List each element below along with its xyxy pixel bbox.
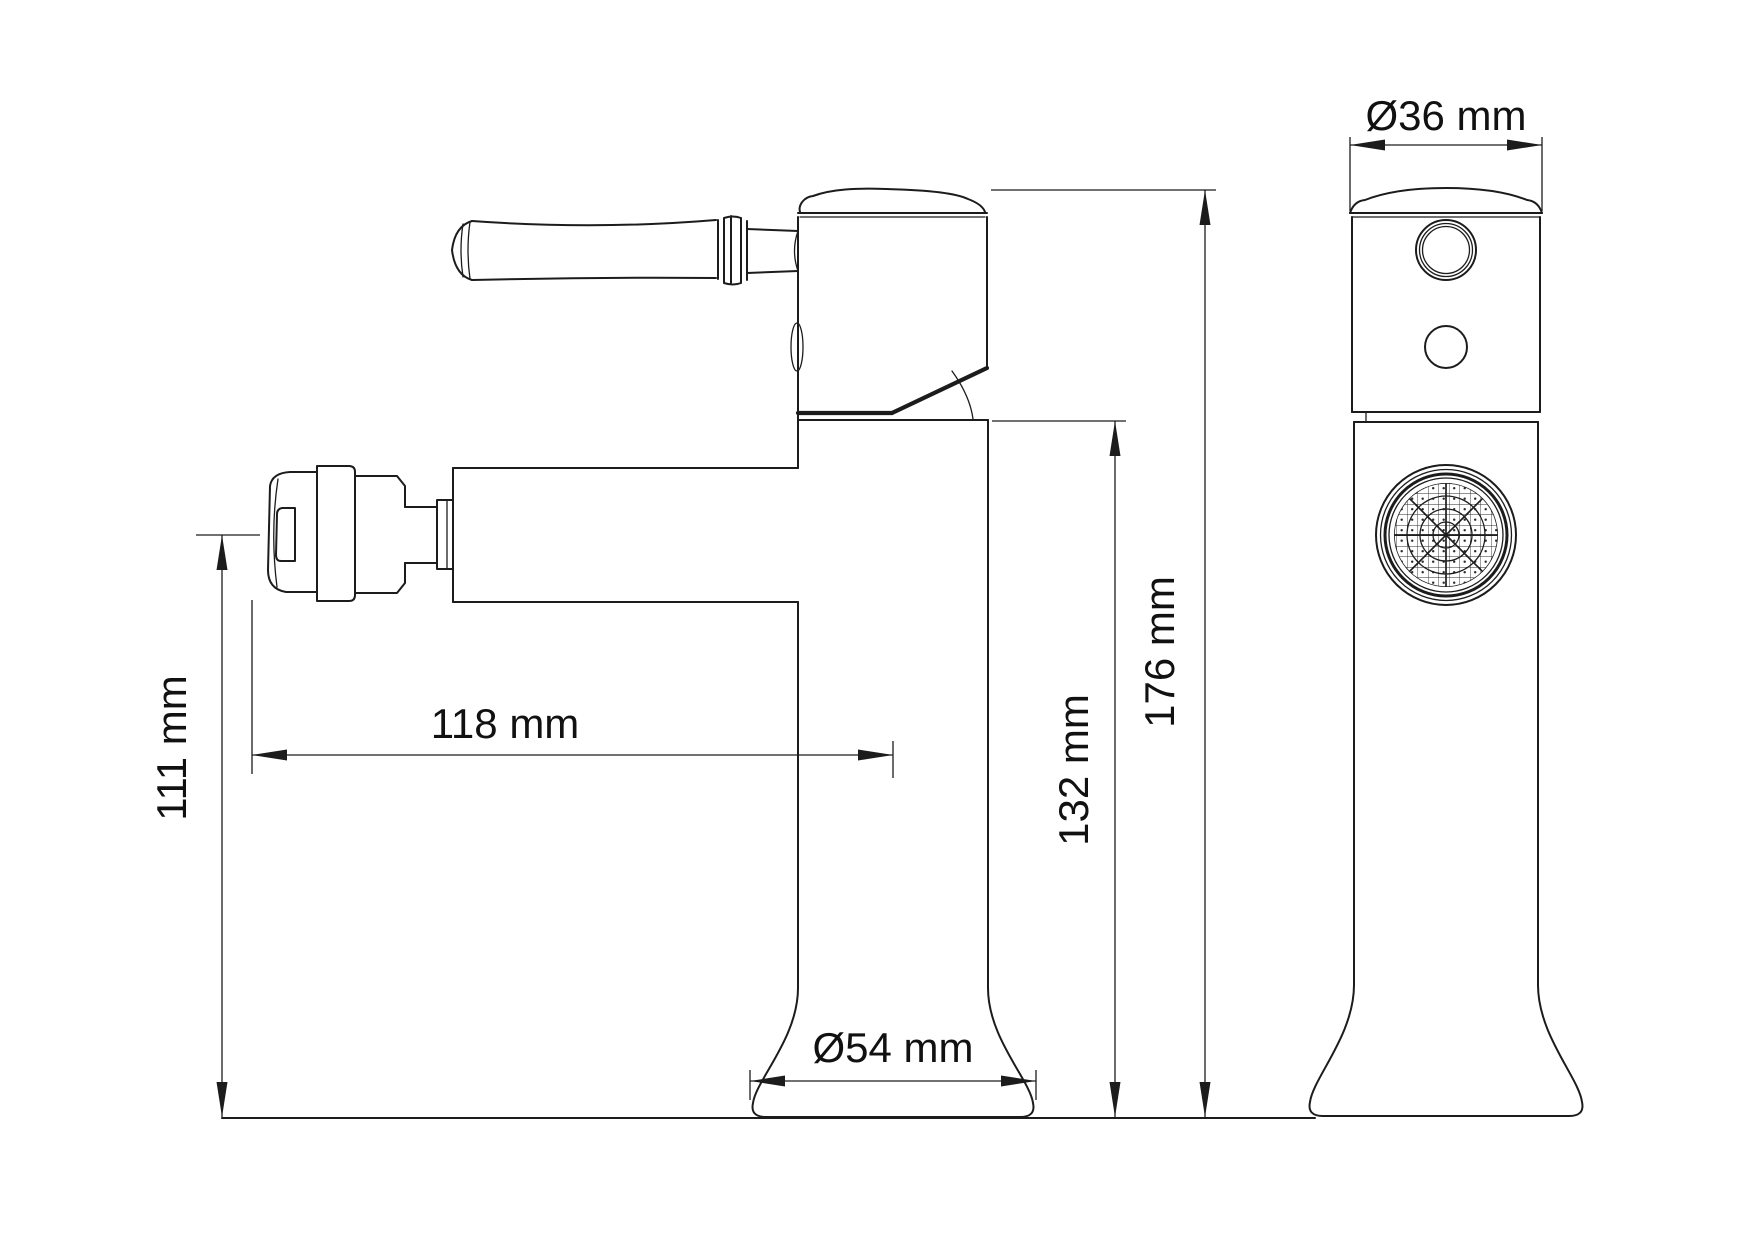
front-indicator-ring-inner xyxy=(1423,227,1470,274)
handle-neck-top xyxy=(747,229,798,231)
arrowhead-up xyxy=(1200,190,1211,225)
front-column-left-edge xyxy=(1310,422,1354,1116)
aerator-segment-right xyxy=(355,476,405,593)
arrowhead-down xyxy=(1110,1082,1121,1117)
side-view-head xyxy=(791,189,987,419)
faucet-dimension-drawing: 111 mm 118 mm 132 mm 176 mm Ø54 mm xyxy=(0,0,1754,1241)
handle-collar xyxy=(718,216,747,285)
aerator-drum xyxy=(317,466,355,601)
front-indicator-ring-outer xyxy=(1416,220,1476,280)
arrowhead-up xyxy=(1110,421,1121,456)
arrowhead-up xyxy=(217,535,228,570)
front-cap-dome xyxy=(1350,188,1542,213)
aerator-mesh-overlay xyxy=(1394,483,1498,587)
arrowhead-right xyxy=(1507,140,1542,151)
arrowhead-right xyxy=(1001,1076,1036,1087)
front-indicator-ring-mid xyxy=(1420,224,1473,277)
technical-drawing-page: 111 mm 118 mm 132 mm 176 mm Ø54 mm xyxy=(0,0,1754,1241)
label-body-height: 132 mm xyxy=(1050,694,1097,846)
spout-neck xyxy=(405,507,437,563)
arrowhead-left xyxy=(252,750,287,761)
aerator-outlet xyxy=(276,508,295,561)
side-view-spout xyxy=(268,466,798,602)
handle-neck-bottom xyxy=(747,271,798,273)
arrowhead-left xyxy=(1350,140,1385,151)
arrowhead-right xyxy=(858,750,893,761)
front-view-cap xyxy=(1350,188,1542,217)
head-chamfer-edge xyxy=(892,368,987,413)
body-right-edge xyxy=(988,420,1033,1117)
dimension-spout-height: 111 mm xyxy=(148,535,260,1117)
arrowhead-down xyxy=(217,1082,228,1117)
label-spout-height: 111 mm xyxy=(148,675,195,820)
dimension-body-height: 132 mm xyxy=(992,421,1126,1117)
handle-end-cap-ridge-2 xyxy=(468,222,470,279)
handle-end-cap-ridge-1 xyxy=(461,224,463,277)
body-left-edge xyxy=(753,602,798,1117)
side-view-handle xyxy=(452,216,798,285)
front-view-aerator xyxy=(1376,465,1516,605)
head-cap-dome xyxy=(800,189,985,212)
front-lower-indicator-circle xyxy=(1425,326,1467,368)
label-spout-reach: 118 mm xyxy=(431,700,580,747)
label-front-width: Ø36 mm xyxy=(1365,92,1526,139)
dimension-spout-reach: 118 mm xyxy=(252,600,893,778)
front-column-right-edge xyxy=(1538,422,1582,1116)
dimension-base-diameter: Ø54 mm xyxy=(750,1024,1036,1100)
dimension-front-width: Ø36 mm xyxy=(1350,92,1542,211)
front-view-valve-body xyxy=(1352,217,1540,422)
spout-flange xyxy=(437,500,453,569)
arrowhead-left xyxy=(750,1076,785,1087)
label-total-height: 176 mm xyxy=(1136,576,1183,728)
handle-barrel-bottom xyxy=(472,278,716,280)
dimension-total-height: 176 mm xyxy=(991,190,1216,1117)
arrowhead-down xyxy=(1200,1082,1211,1117)
handle-barrel-top xyxy=(472,220,716,225)
label-base-diameter: Ø54 mm xyxy=(812,1024,973,1071)
side-view xyxy=(268,189,1033,1117)
front-view xyxy=(1310,188,1583,1116)
